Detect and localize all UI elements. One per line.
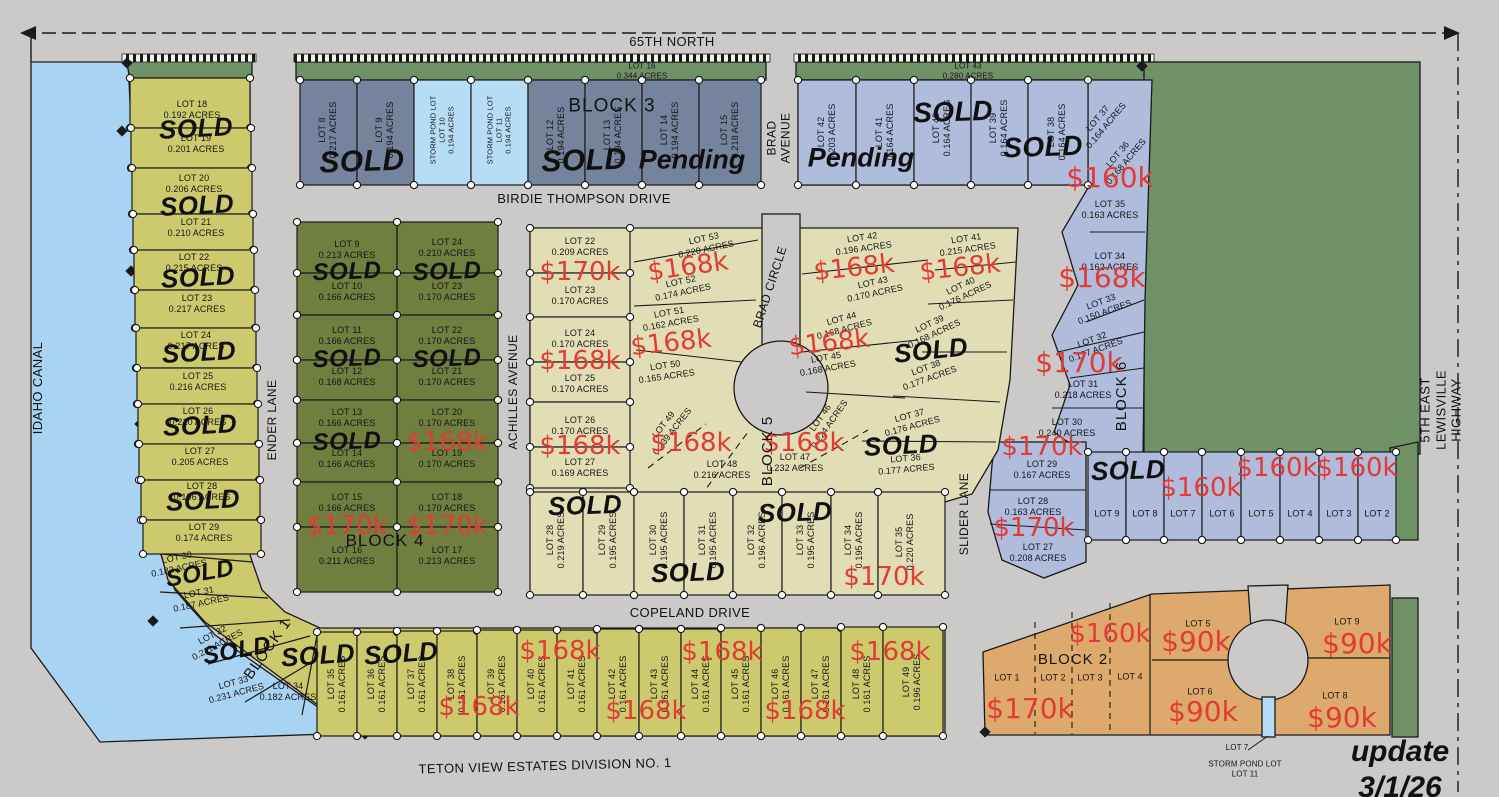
lot-label-b6-3: LOT 3 <box>1326 509 1351 520</box>
status-price-47: $168k <box>787 326 871 360</box>
lot-label-b3-11: STORM POND LOT LOT 11 0.194 ACRES <box>486 96 513 165</box>
status-price-26: $170k <box>993 515 1074 541</box>
status-price-25: $170k <box>1001 434 1082 460</box>
status-price-58: $90k <box>1168 698 1238 726</box>
block-label-13: BLOCK 2 <box>1038 651 1108 669</box>
status-sold-52: SOLD <box>650 558 725 587</box>
lot-label-b6-35: LOT 35 0.163 ACRES <box>1082 199 1139 221</box>
road-label-10: TETON VIEW ESTATES DIVISION NO. 1 <box>418 755 671 777</box>
block-label-17: BLOCK 6 <box>1113 361 1131 431</box>
status-price-23: $168k <box>1058 264 1145 292</box>
road-label-5: ACHILLES AVENUE <box>506 334 520 449</box>
status-sold-3: SOLD <box>161 337 236 367</box>
status-sold-17: SOLD <box>541 145 627 178</box>
status-sold-4: SOLD <box>162 410 237 440</box>
status-sold-21: SOLD <box>1003 132 1084 163</box>
block-label-15: BLOCK 4 <box>346 531 425 551</box>
status-price-12: $168k <box>605 698 686 724</box>
lot-label-b5-29: LOT 29 0.195 ACRES <box>597 512 619 569</box>
lot-label-b1-23: LOT 23 0.217 ACRES <box>169 293 226 315</box>
status-price-24: $170k <box>1035 349 1122 377</box>
status-price-15: $168k <box>849 639 930 665</box>
lot-label-b5-23: LOT 23 0.170 ACRES <box>552 285 609 307</box>
status-sold-51: SOLD <box>547 491 622 520</box>
road-label-4: BRAD CIRCLE <box>750 244 790 329</box>
status-price-30: $160k <box>1316 455 1397 481</box>
lot-label-b6-43-green: LOT 43 0.280 ACRES <box>943 61 993 80</box>
lot-label-b1-29: LOT 29 0.174 ACRES <box>176 522 233 544</box>
lot-label-b6-2: LOT 2 <box>1364 509 1389 520</box>
lot-label-b2-3: LOT 3 <box>1077 673 1102 684</box>
lot-label-b5-34: LOT 34 0.195 ACRES <box>843 512 865 569</box>
lot-label-b5-22: LOT 22 0.209 ACRES <box>552 236 609 258</box>
lot-label-b2-9: LOT 9 <box>1334 617 1359 628</box>
status-sold-53: SOLD <box>757 498 832 527</box>
lot-label-b6-29: LOT 29 0.167 ACRES <box>1014 459 1071 481</box>
lot-label-b4-17: LOT 17 0.213 ACRES <box>419 545 476 567</box>
lot-label-b1-27: LOT 27 0.205 ACRES <box>172 446 229 468</box>
status-price-39: $170k <box>539 259 620 285</box>
lot-label-b2-8: LOT 8 <box>1322 691 1347 702</box>
road-label-0: 65TH NORTH <box>629 34 714 50</box>
road-label-3: BRAD AVENUE <box>765 113 794 164</box>
block-label-14: BLOCK 3 <box>568 96 655 119</box>
lot-label-b6-6: LOT 6 <box>1209 509 1234 520</box>
label-layer: LOT 18 0.192 ACRESLOT 19 0.201 ACRESLOT … <box>0 0 1499 797</box>
lot-label-b6-31: LOT 31 0.218 ACRES <box>1055 379 1112 401</box>
lot-label-b3-16-green: LOT 16 0.344 ACRES <box>617 61 667 80</box>
note-label-11: update 3/1/26 <box>1351 734 1450 797</box>
road-label-2: COPELAND DRIVE <box>630 605 750 621</box>
status-price-41: $168k <box>539 433 620 459</box>
lot-label-b2-7-note: LOT 7 <box>1226 743 1249 753</box>
road-label-7: SLIDER LANE <box>957 473 971 555</box>
lot-label-b2-2: LOT 2 <box>1040 673 1065 684</box>
block-label-16: BLOCK 5 <box>759 416 777 486</box>
lot-label-b6-27: LOT 27 0.208 ACRES <box>1010 542 1067 564</box>
lot-label-b4-13: LOT 13 0.166 ACRES <box>319 407 376 429</box>
lot-label-b4-24: LOT 24 0.210 ACRES <box>419 237 476 259</box>
status-sold-0: SOLD <box>158 113 233 143</box>
status-price-57: $90k <box>1161 628 1231 656</box>
plat-map: LOT 18 0.192 ACRESLOT 19 0.201 ACRESLOT … <box>0 0 1499 797</box>
status-price-13: $168k <box>681 639 762 665</box>
status-price-28: $160k <box>1160 475 1241 501</box>
lot-label-b6-8: LOT 8 <box>1132 509 1157 520</box>
status-price-37: $168k <box>406 429 487 455</box>
status-sold-48: SOLD <box>893 333 970 367</box>
lot-label-b1-34: LOT 34 0.182 ACRES <box>260 681 317 703</box>
road-label-8: IDAHO CANAL <box>30 342 46 435</box>
status-price-60: $90k <box>1307 704 1377 732</box>
status-price-43: $168k <box>629 326 713 360</box>
status-price-44: $168k <box>650 430 731 456</box>
status-price-29: $160k <box>1236 455 1317 481</box>
status-sold-27: SOLD <box>1090 456 1165 485</box>
status-sold-1: SOLD <box>159 190 234 220</box>
status-price-56: $170k <box>986 695 1073 723</box>
status-sold-50: SOLD <box>863 430 938 460</box>
status-sold-35: SOLD <box>412 259 481 285</box>
status-price-54: $170k <box>843 564 924 590</box>
status-price-11: $168k <box>519 638 600 664</box>
status-sold-2: SOLD <box>160 262 235 292</box>
status-price-14: $168k <box>764 698 845 724</box>
status-sold-36: SOLD <box>412 346 481 372</box>
lot-label-b1-25: LOT 25 0.216 ACRES <box>170 371 227 393</box>
status-sold-20: SOLD <box>913 97 994 128</box>
road-label-9: 5TH EAST LEWISVILLE HIGHWAY <box>1418 370 1465 450</box>
status-price-59: $90k <box>1322 630 1392 658</box>
lot-label-b2-1: LOT 1 <box>994 673 1019 684</box>
lot-label-b6-4: LOT 4 <box>1287 509 1312 520</box>
status-pending-19: Pending <box>808 145 915 172</box>
status-sold-8: SOLD <box>280 639 356 670</box>
status-sold-31: SOLD <box>312 259 381 285</box>
lot-label-b4-20: LOT 20 0.170 ACRES <box>419 407 476 429</box>
lot-label-b5-25: LOT 25 0.170 ACRES <box>552 373 609 395</box>
lot-label-b6-5: LOT 5 <box>1248 509 1273 520</box>
status-price-42: $168k <box>646 248 730 285</box>
status-sold-33: SOLD <box>312 429 381 455</box>
status-price-40: $168k <box>539 348 620 374</box>
lot-label-b6-9: LOT 9 <box>1094 509 1119 520</box>
status-sold-32: SOLD <box>312 346 381 372</box>
status-price-10: $168k <box>438 694 519 720</box>
lot-label-b2-4: LOT 4 <box>1117 672 1142 683</box>
status-sold-9: SOLD <box>363 637 439 668</box>
lot-label-b2-storm-note: STORM POND LOT LOT 11 <box>1208 759 1281 778</box>
lot-label-b5-48: LOT 48 0.216 ACRES <box>694 459 751 481</box>
lot-label-b3-10: STORM POND LOT LOT 10 0.194 ACRES <box>429 96 456 165</box>
status-pending-18: Pending <box>639 147 746 174</box>
road-label-6: ENDER LANE <box>265 380 279 461</box>
status-price-55: $160k <box>1069 621 1150 647</box>
status-sold-5: SOLD <box>165 485 240 515</box>
lot-label-b6-7: LOT 7 <box>1170 509 1195 520</box>
road-label-1: BIRDIE THOMPSON DRIVE <box>497 191 671 207</box>
status-price-22: $160k <box>1066 164 1153 192</box>
status-sold-16: SOLD <box>319 146 405 179</box>
